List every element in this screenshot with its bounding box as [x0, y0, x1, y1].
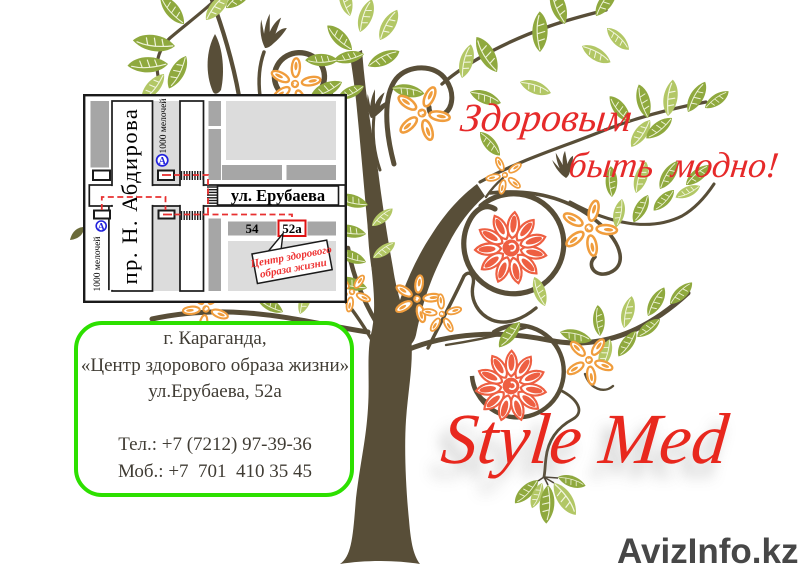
svg-text:1000 мелочей: 1000 мелочей: [158, 99, 169, 154]
svg-text:52а: 52а: [282, 221, 302, 236]
svg-text:A: A: [98, 222, 105, 232]
svg-text:A: A: [159, 156, 167, 167]
svg-text:54: 54: [246, 221, 260, 236]
svg-text:пр. Н. Абдирова: пр. Н. Абдирова: [117, 108, 142, 285]
svg-text:ул. Ерубаева: ул. Ерубаева: [231, 186, 325, 205]
svg-text:1000 мелочей: 1000 мелочей: [92, 237, 103, 292]
